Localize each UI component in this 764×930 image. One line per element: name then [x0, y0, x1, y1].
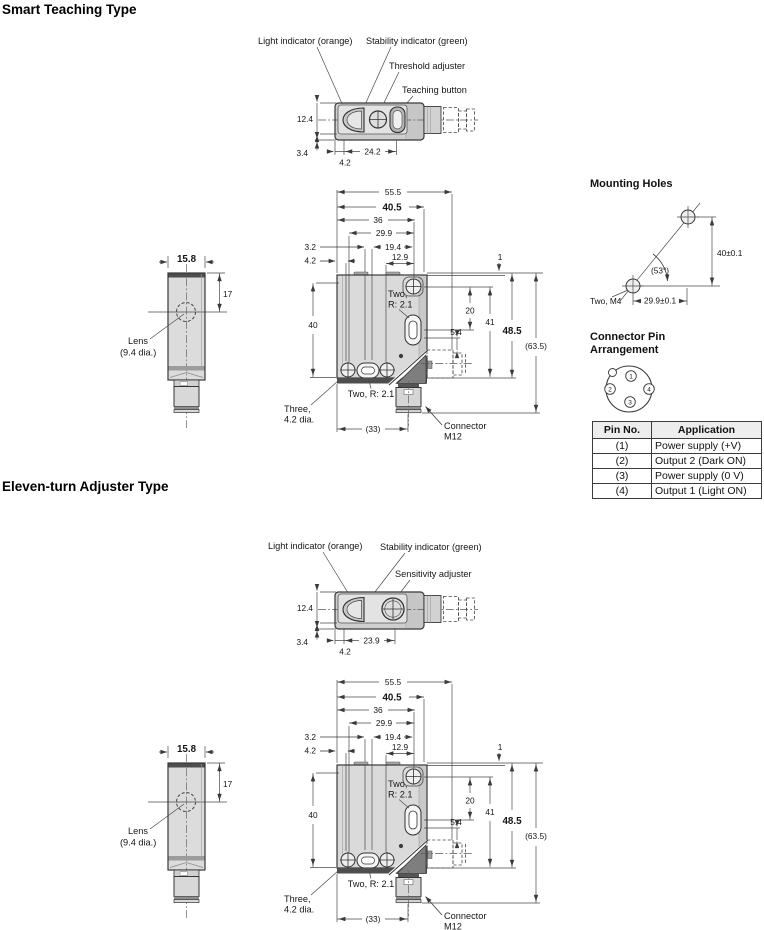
pin-table-row: (1) Power supply (+V) — [593, 439, 762, 454]
application-cell: Power supply (+V) — [652, 439, 762, 454]
connector-notch — [609, 369, 617, 377]
two-m4-label: Two, M4 — [590, 296, 622, 306]
application-cell: Output 2 (Dark ON) — [652, 454, 762, 469]
smart-side-view — [120, 254, 233, 428]
pin-no-cell: (3) — [593, 469, 652, 484]
stability-indicator-label: Stability indicator (green) — [380, 542, 482, 552]
pin-no-cell: (2) — [593, 454, 652, 469]
application-cell: Power supply (0 V) — [652, 469, 762, 484]
pin-table: Pin No. Application (1) Power supply (+V… — [592, 421, 762, 499]
teaching-button-label: Teaching button — [402, 85, 467, 95]
top-view-connector — [424, 596, 475, 623]
light-indicator-label: Light indicator (orange) — [258, 36, 352, 46]
dim-12-4: 12.4 — [297, 603, 314, 613]
dim-29-9-01: 29.9±0.1 — [644, 296, 677, 306]
connector-pin-diagram: 1 2 3 4 — [605, 366, 655, 412]
dim-12-4: 12.4 — [297, 114, 314, 124]
pin-4: 4 — [647, 386, 651, 393]
pin-table-header-row: Pin No. Application — [593, 422, 762, 439]
threshold-adjuster-label: Threshold adjuster — [389, 61, 465, 71]
application-header: Application — [652, 422, 762, 439]
pin-3: 3 — [628, 399, 632, 406]
eleven-side-view — [120, 744, 233, 918]
dim-4-2-offset: 4.2 — [339, 158, 351, 168]
light-indicator-label: Light indicator (orange) — [268, 541, 362, 551]
pin-1: 1 — [629, 373, 633, 380]
dim-angle: (53°) — [651, 266, 669, 276]
page: Smart Teaching Type Eleven-turn Adjuster… — [0, 0, 764, 930]
dim-3-4: 3.4 — [296, 637, 308, 647]
pin-table-row: (3) Power supply (0 V) — [593, 469, 762, 484]
pin-2: 2 — [608, 386, 612, 393]
dim-4-2-offset: 4.2 — [339, 647, 351, 657]
eleven-top-view: Light indicator (orange) Stability indic… — [268, 541, 482, 657]
smart-top-view: Light indicator (orange) Stability indic… — [258, 36, 478, 168]
dim-40-01: 40±0.1 — [717, 248, 743, 258]
pin-no-cell: (1) — [593, 439, 652, 454]
pin-no-cell: (4) — [593, 484, 652, 499]
pin-no-header: Pin No. — [593, 422, 652, 439]
pin-table-row: (2) Output 2 (Dark ON) — [593, 454, 762, 469]
mounting-holes-diagram: 40±0.1 29.9±0.1 (53°) Two, M4 — [590, 203, 743, 306]
dim-3-4: 3.4 — [296, 148, 308, 158]
application-cell: Output 1 (Light ON) — [652, 484, 762, 499]
stability-indicator-label: Stability indicator (green) — [366, 36, 468, 46]
smart-front-view — [284, 187, 547, 442]
sensitivity-adjuster-label: Sensitivity adjuster — [395, 569, 472, 579]
dim-23-9: 23.9 — [363, 636, 380, 646]
pin-table-row: (4) Output 1 (Light ON) — [593, 484, 762, 499]
eleven-front-view — [284, 677, 547, 930]
dim-24-2: 24.2 — [364, 147, 381, 157]
